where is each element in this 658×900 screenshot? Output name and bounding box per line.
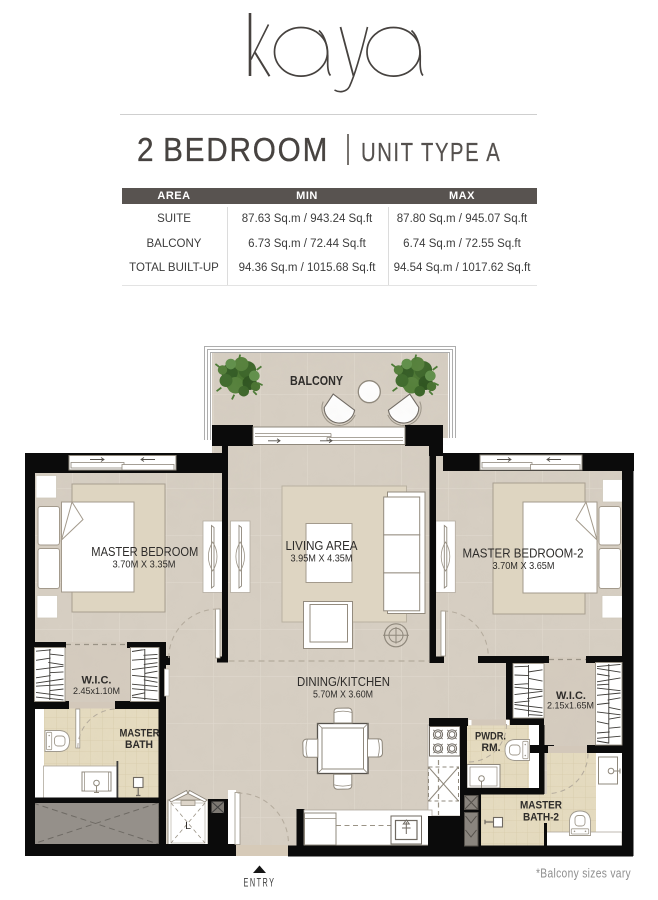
svg-text:3.70M X 3.65M: 3.70M X 3.65M: [493, 561, 555, 572]
svg-text:L: L: [185, 820, 191, 832]
svg-text:3.70M X 3.35M: 3.70M X 3.35M: [113, 560, 176, 571]
svg-text:MASTER BEDROOM-2: MASTER BEDROOM-2: [463, 546, 584, 561]
svg-text:2.15x1.65M: 2.15x1.65M: [547, 701, 594, 711]
svg-text:RM.: RM.: [482, 742, 501, 754]
svg-text:ENTRY: ENTRY: [244, 876, 276, 890]
svg-text:BATH-2: BATH-2: [523, 812, 559, 824]
svg-text:MASTER: MASTER: [520, 800, 562, 812]
svg-text:W.I.C.: W.I.C.: [82, 675, 112, 687]
svg-text:2.45x1.10M: 2.45x1.10M: [73, 686, 120, 696]
svg-text:3.95M X 4.35M: 3.95M X 4.35M: [291, 554, 353, 565]
svg-text:5.70M X 3.60M: 5.70M X 3.60M: [313, 690, 373, 701]
svg-text:MASTER BEDROOM: MASTER BEDROOM: [91, 544, 198, 559]
svg-text:MASTER: MASTER: [120, 728, 160, 740]
svg-text:BALCONY: BALCONY: [290, 373, 343, 388]
svg-text:BATH: BATH: [125, 739, 153, 751]
svg-text:LIVING AREA: LIVING AREA: [286, 538, 358, 553]
svg-text:DINING/KITCHEN: DINING/KITCHEN: [297, 674, 390, 689]
svg-text:PWDR.: PWDR.: [475, 731, 506, 743]
svg-text:*Balcony sizes vary: *Balcony sizes vary: [536, 866, 631, 881]
